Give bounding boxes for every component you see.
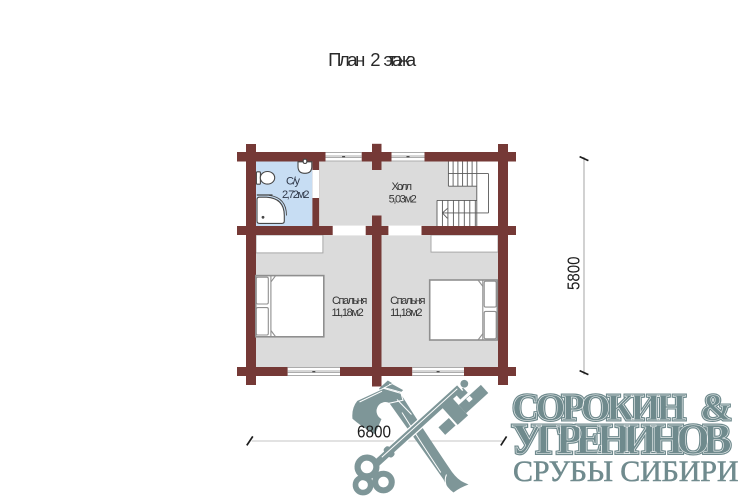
svg-text:2: 2	[370, 49, 380, 70]
svg-text:6800: 6800	[357, 421, 391, 441]
svg-text:11,18м2: 11,18м2	[390, 307, 422, 319]
svg-text:2,72м2: 2,72м2	[282, 189, 310, 201]
svg-text:Спальня: Спальня	[332, 295, 367, 307]
svg-text:5,03м2: 5,03м2	[389, 193, 417, 205]
svg-text:СРУБЫ СИБИРИ: СРУБЫ СИБИРИ	[513, 455, 739, 488]
svg-text:План: План	[328, 49, 365, 70]
svg-text:Спальня: Спальня	[390, 295, 425, 307]
svg-text:С/у: С/у	[286, 176, 301, 188]
svg-text:11,18м2: 11,18м2	[331, 307, 363, 319]
svg-text:5800: 5800	[563, 256, 583, 290]
svg-text:Холл: Холл	[392, 181, 413, 193]
svg-text:этажа: этажа	[384, 49, 417, 70]
